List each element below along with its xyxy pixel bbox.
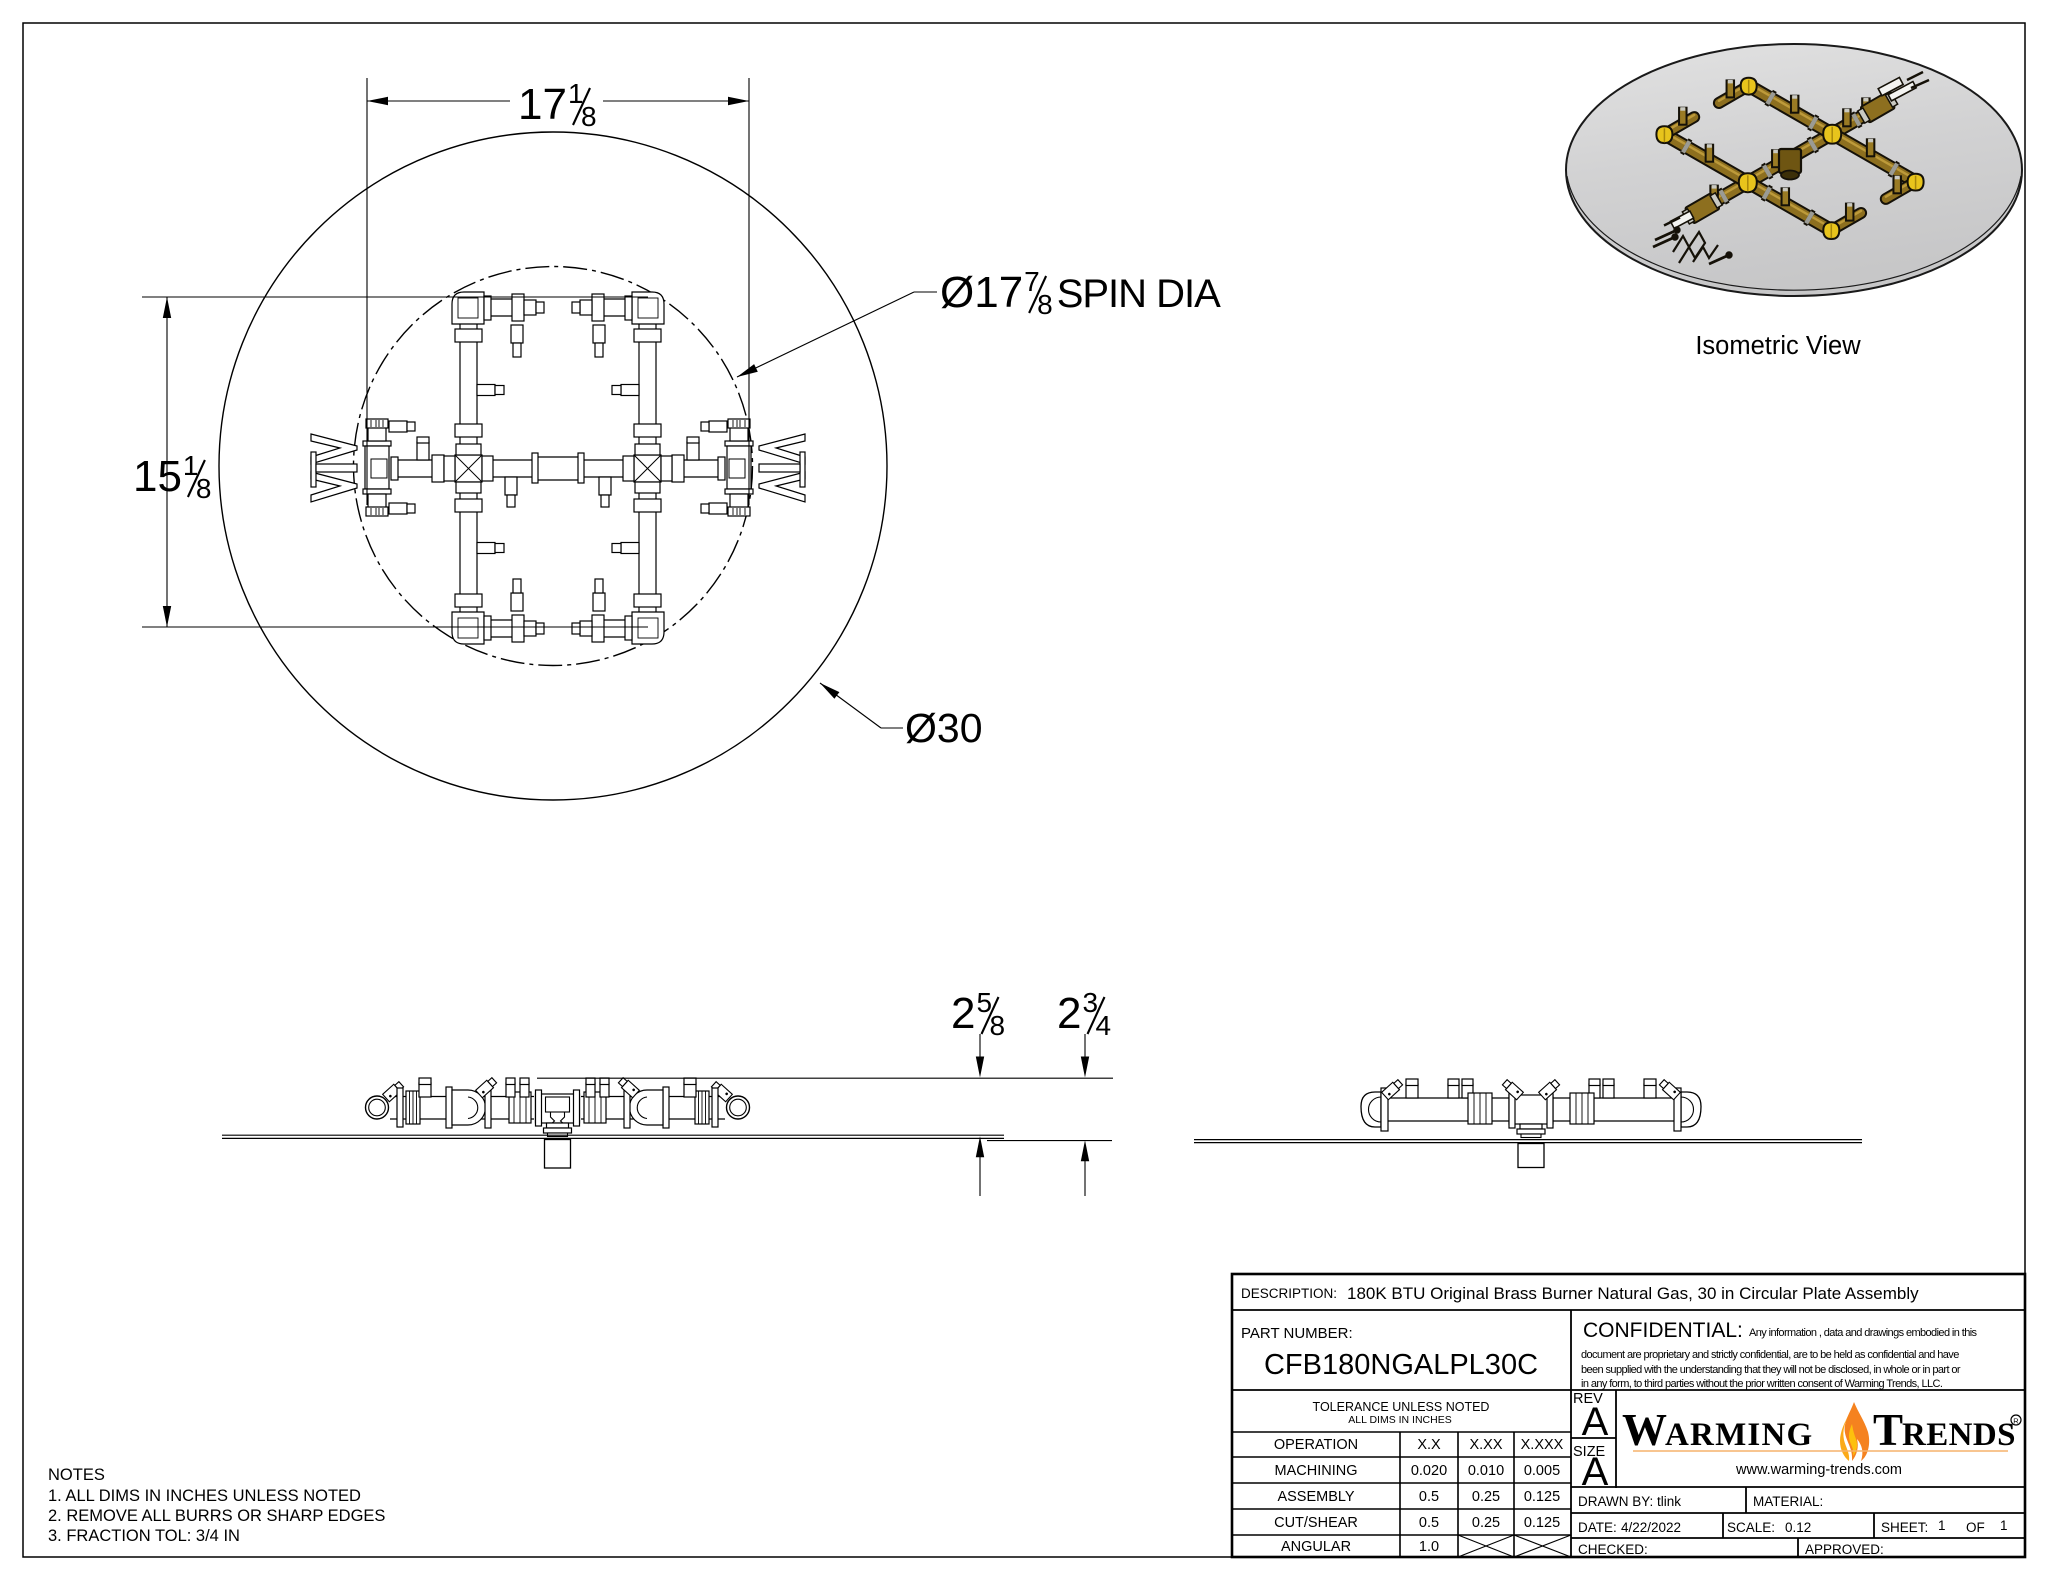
svg-text:2: 2 — [1057, 989, 1081, 1038]
svg-text:SCALE:: SCALE: — [1727, 1520, 1775, 1535]
svg-text:OF: OF — [1966, 1520, 1985, 1535]
svg-text:0.125: 0.125 — [1524, 1489, 1560, 1505]
svg-text:Ø30: Ø30 — [905, 705, 983, 751]
svg-text:A: A — [1582, 1400, 1609, 1444]
svg-text:0.125: 0.125 — [1524, 1515, 1560, 1531]
svg-text:3. FRACTION TOL: 3/4 IN: 3. FRACTION TOL: 3/4 IN — [48, 1527, 240, 1545]
svg-text:MATERIAL:: MATERIAL: — [1753, 1494, 1823, 1509]
svg-text:X.X: X.X — [1417, 1437, 1441, 1453]
svg-text:8: 8 — [581, 101, 597, 132]
svg-text:0.020: 0.020 — [1411, 1463, 1447, 1479]
svg-text:ANGULAR: ANGULAR — [1281, 1539, 1351, 1555]
svg-text:TOLERANCE UNLESS NOTED: TOLERANCE UNLESS NOTED — [1313, 1400, 1490, 1414]
svg-text:4/22/2022: 4/22/2022 — [1621, 1520, 1681, 1535]
svg-text:8: 8 — [990, 1010, 1006, 1041]
svg-text:0.5: 0.5 — [1419, 1489, 1439, 1505]
svg-text:W: W — [1622, 1405, 1667, 1455]
svg-text:17: 17 — [518, 80, 567, 129]
svg-text:1: 1 — [2000, 1518, 2008, 1533]
svg-text:SPIN DIA: SPIN DIA — [1057, 272, 1221, 316]
svg-text:0.5: 0.5 — [1419, 1515, 1439, 1531]
svg-text:8: 8 — [1037, 289, 1053, 320]
svg-text:180K BTU Original Brass Burner: 180K BTU Original Brass Burner Natural G… — [1347, 1284, 1919, 1303]
svg-text:RENDS: RENDS — [1902, 1417, 2016, 1453]
svg-text:document are proprietary and s: document are proprietary and strictly co… — [1581, 1349, 1959, 1361]
svg-text:1: 1 — [1938, 1518, 1946, 1533]
svg-text:MACHINING: MACHINING — [1275, 1463, 1358, 1479]
svg-text:DRAWN BY: tlink: DRAWN BY: tlink — [1578, 1494, 1681, 1509]
svg-text:www.warming-trends.com: www.warming-trends.com — [1735, 1462, 1902, 1478]
svg-text:X.XX: X.XX — [1469, 1437, 1502, 1453]
svg-text:ARMING: ARMING — [1665, 1417, 1813, 1453]
svg-text:in any form, to third parties: in any form, to third parties without th… — [1581, 1378, 1943, 1390]
svg-text:CFB180NGALPL30C: CFB180NGALPL30C — [1264, 1349, 1538, 1381]
svg-text:2. REMOVE ALL BURRS OR SHARP E: 2. REMOVE ALL BURRS OR SHARP EDGES — [48, 1507, 385, 1525]
svg-text:A: A — [1582, 1450, 1609, 1494]
svg-text:8: 8 — [196, 473, 212, 504]
svg-text:X.XXX: X.XXX — [1521, 1437, 1564, 1453]
svg-text:15: 15 — [133, 452, 182, 501]
svg-text:1.0: 1.0 — [1419, 1539, 1439, 1555]
svg-text:OPERATION: OPERATION — [1274, 1437, 1358, 1453]
svg-text:Any information , data and dra: Any information , data and drawings embo… — [1749, 1327, 1978, 1339]
svg-text:R: R — [2013, 1417, 2019, 1426]
svg-text:0.25: 0.25 — [1472, 1489, 1500, 1505]
svg-text:ASSEMBLY: ASSEMBLY — [1277, 1489, 1354, 1505]
svg-text:PART NUMBER:: PART NUMBER: — [1241, 1325, 1353, 1342]
svg-text:0.12: 0.12 — [1785, 1520, 1811, 1535]
svg-text:DESCRIPTION:: DESCRIPTION: — [1241, 1286, 1337, 1301]
svg-text:DATE:: DATE: — [1578, 1520, 1617, 1535]
svg-text:0.25: 0.25 — [1472, 1515, 1500, 1531]
svg-text:4: 4 — [1096, 1010, 1112, 1041]
svg-text:APPROVED:: APPROVED: — [1805, 1542, 1884, 1557]
svg-text:0.005: 0.005 — [1524, 1463, 1560, 1479]
svg-text:1. ALL DIMS IN INCHES UNLESS N: 1. ALL DIMS IN INCHES UNLESS NOTED — [48, 1487, 361, 1505]
svg-text:been supplied with the underst: been supplied with the understanding tha… — [1581, 1364, 1961, 1376]
svg-text:T: T — [1873, 1405, 1903, 1455]
svg-text:2: 2 — [951, 989, 975, 1038]
svg-text:ALL DIMS IN INCHES: ALL DIMS IN INCHES — [1348, 1414, 1451, 1426]
svg-text:0.010: 0.010 — [1468, 1463, 1504, 1479]
svg-text:CONFIDENTIAL:: CONFIDENTIAL: — [1583, 1319, 1743, 1342]
svg-text:SHEET:: SHEET: — [1881, 1520, 1928, 1535]
svg-text:CUT/SHEAR: CUT/SHEAR — [1274, 1515, 1358, 1531]
svg-text:CHECKED:: CHECKED: — [1578, 1542, 1648, 1557]
svg-text:Isometric View: Isometric View — [1695, 332, 1861, 360]
svg-text:Ø17: Ø17 — [940, 268, 1023, 317]
svg-text:NOTES: NOTES — [48, 1466, 105, 1484]
